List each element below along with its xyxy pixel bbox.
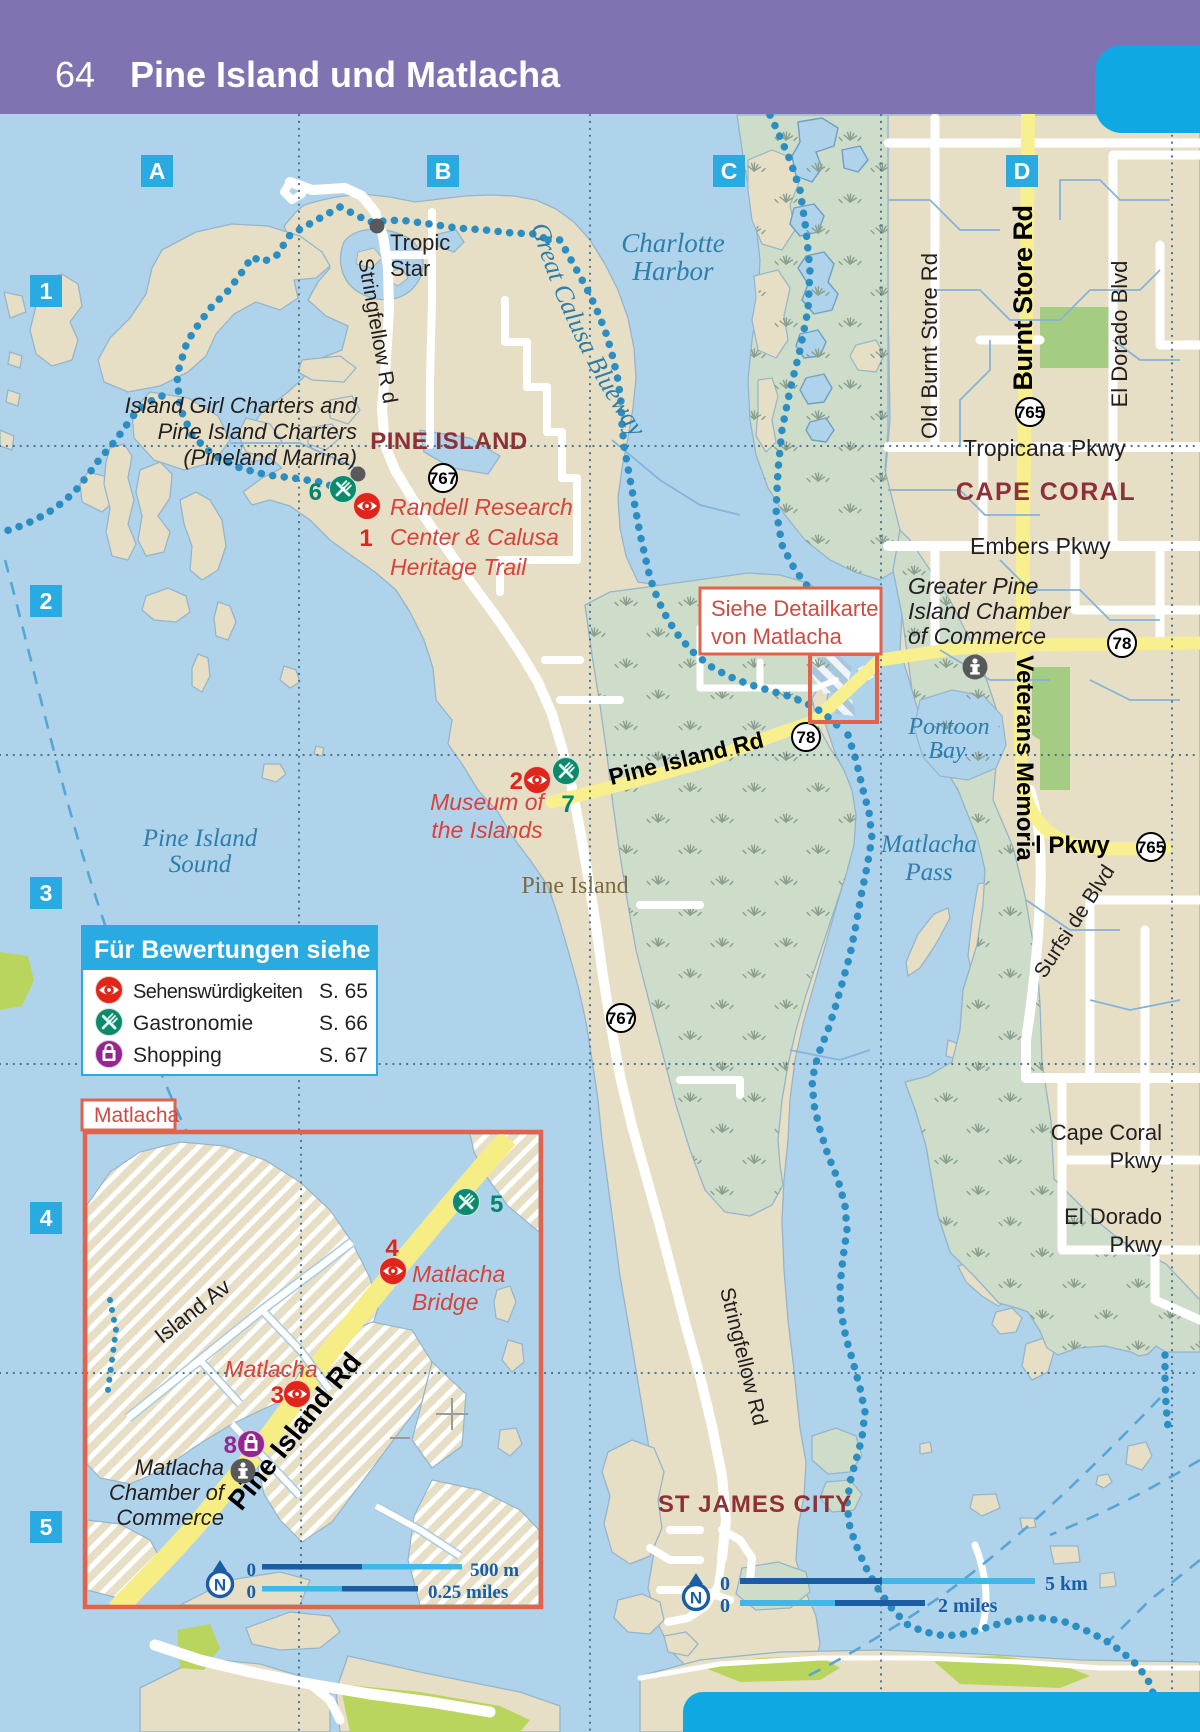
svg-text:S. 66: S. 66 — [319, 1012, 368, 1035]
svg-text:Für Bewertungen siehe: Für Bewertungen siehe — [94, 936, 371, 964]
svg-text:(Pineland Marina): (Pineland Marina) — [183, 445, 357, 470]
svg-text:5: 5 — [490, 1191, 503, 1218]
svg-text:Pine Island: Pine Island — [521, 873, 628, 899]
svg-text:0: 0 — [247, 1560, 257, 1581]
svg-text:l Pkwy: l Pkwy — [1035, 832, 1110, 859]
svg-text:Cape Coral: Cape Coral — [1051, 1120, 1162, 1145]
svg-text:5: 5 — [40, 1514, 53, 1540]
svg-text:Greater Pine: Greater Pine — [908, 573, 1038, 599]
svg-text:Matlacha: Matlacha — [94, 1104, 180, 1127]
svg-text:Sehenswürdigkeiten: Sehenswürdigkeiten — [133, 981, 302, 1003]
svg-text:767: 767 — [429, 469, 457, 488]
svg-text:Commerce: Commerce — [116, 1505, 224, 1530]
svg-text:Star: Star — [390, 256, 430, 281]
svg-text:Veterans Memoria: Veterans Memoria — [1011, 655, 1038, 861]
svg-text:2: 2 — [510, 768, 523, 795]
svg-text:Pine Island: Pine Island — [142, 825, 258, 852]
svg-text:1: 1 — [40, 278, 53, 304]
svg-text:S. 67: S. 67 — [319, 1044, 368, 1067]
svg-text:Bay: Bay — [928, 738, 966, 764]
svg-text:1: 1 — [359, 525, 372, 552]
svg-text:Pkwy: Pkwy — [1109, 1148, 1162, 1173]
svg-text:Pkwy: Pkwy — [1109, 1232, 1162, 1257]
svg-text:8: 8 — [224, 1432, 237, 1459]
svg-text:Heritage Trail: Heritage Trail — [390, 554, 527, 580]
svg-text:765: 765 — [1016, 403, 1044, 422]
svg-text:Shopping: Shopping — [133, 1044, 222, 1067]
svg-text:Center & Calusa: Center & Calusa — [390, 524, 559, 550]
svg-text:78: 78 — [797, 728, 816, 747]
svg-text:Old Burnt Store Rd: Old Burnt Store Rd — [917, 253, 942, 439]
svg-text:Pine Island Charters: Pine Island Charters — [158, 419, 357, 444]
svg-text:Chamber of: Chamber of — [109, 1480, 227, 1505]
svg-text:6: 6 — [309, 479, 322, 506]
svg-text:500 m: 500 m — [470, 1560, 519, 1581]
svg-text:Matlacha: Matlacha — [880, 831, 977, 858]
svg-text:Museum of: Museum of — [430, 789, 546, 815]
svg-text:ST JAMES CITY: ST JAMES CITY — [658, 1491, 852, 1518]
svg-text:Pine Island und Matlacha: Pine Island und Matlacha — [130, 54, 561, 95]
svg-text:Island Girl Charters and: Island Girl Charters and — [125, 393, 358, 418]
svg-text:0: 0 — [247, 1582, 257, 1603]
svg-text:2 miles: 2 miles — [938, 1595, 998, 1617]
svg-text:Randell Research: Randell Research — [390, 494, 573, 520]
svg-text:7: 7 — [561, 791, 574, 818]
svg-text:CAPE CORAL: CAPE CORAL — [956, 478, 1136, 506]
svg-text:Tropicana Pkwy: Tropicana Pkwy — [963, 435, 1126, 461]
svg-text:4: 4 — [40, 1205, 53, 1231]
svg-text:78: 78 — [1113, 634, 1132, 653]
svg-text:B: B — [435, 158, 452, 184]
svg-text:Gastronomie: Gastronomie — [133, 1012, 253, 1035]
svg-text:Harbor: Harbor — [631, 256, 714, 286]
svg-text:the Islands: the Islands — [431, 817, 543, 843]
svg-text:von Matlacha: von Matlacha — [711, 624, 843, 649]
svg-text:767: 767 — [607, 1009, 635, 1028]
svg-text:El Dorado Blvd: El Dorado Blvd — [1107, 261, 1132, 408]
svg-text:A: A — [149, 158, 166, 184]
svg-text:Burnt Store Rd: Burnt Store Rd — [1008, 206, 1038, 391]
svg-text:Island Chamber: Island Chamber — [908, 598, 1072, 624]
svg-text:Sound: Sound — [169, 851, 232, 878]
svg-text:3: 3 — [40, 880, 53, 906]
svg-text:Matlacha: Matlacha — [224, 1356, 317, 1382]
svg-text:PINE ISLAND: PINE ISLAND — [370, 428, 528, 455]
svg-text:0: 0 — [720, 1573, 730, 1595]
svg-text:of Commerce: of Commerce — [908, 623, 1046, 649]
svg-text:Matlacha: Matlacha — [135, 1455, 224, 1480]
svg-text:Charlotte: Charlotte — [621, 228, 725, 258]
svg-text:Matlacha: Matlacha — [412, 1261, 505, 1287]
svg-text:5 km: 5 km — [1045, 1573, 1088, 1595]
svg-text:Pontoon: Pontoon — [907, 714, 989, 740]
svg-text:0.25 miles: 0.25 miles — [428, 1582, 508, 1603]
svg-text:Siehe Detailkarte: Siehe Detailkarte — [711, 596, 879, 621]
svg-text:2: 2 — [40, 588, 53, 614]
svg-text:3: 3 — [271, 1382, 284, 1409]
svg-text:64: 64 — [55, 54, 95, 95]
svg-text:4: 4 — [385, 1235, 399, 1262]
svg-text:765: 765 — [1137, 838, 1165, 857]
svg-text:Pass: Pass — [904, 859, 952, 886]
svg-text:D: D — [1014, 158, 1031, 184]
svg-text:El Dorado: El Dorado — [1064, 1204, 1162, 1229]
svg-text:Tropic: Tropic — [390, 230, 450, 255]
svg-text:0: 0 — [720, 1595, 730, 1617]
svg-text:C: C — [721, 158, 738, 184]
svg-text:Embers Pkwy: Embers Pkwy — [970, 533, 1111, 559]
svg-text:Bridge: Bridge — [412, 1289, 478, 1315]
svg-text:S. 65: S. 65 — [319, 980, 368, 1003]
